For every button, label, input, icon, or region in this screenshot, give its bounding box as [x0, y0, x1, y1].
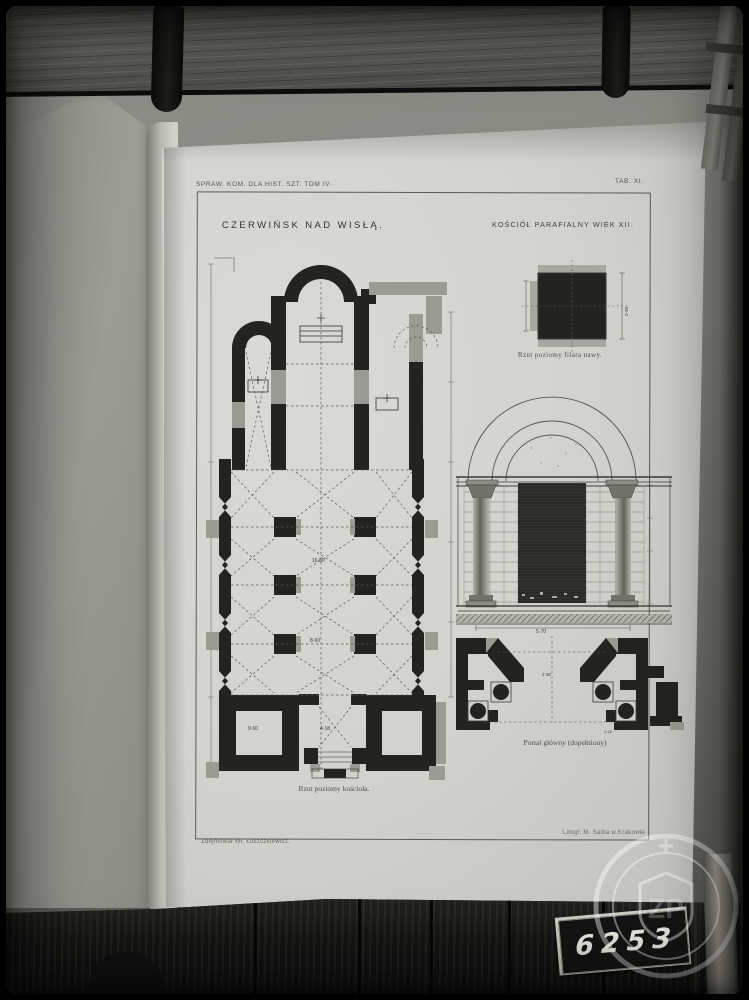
- plan-wall-notches: [219, 497, 424, 755]
- credit-draughtsman: Zdejmował Wł. Łuszczkiewicz.: [201, 839, 290, 845]
- inventory-plaque: 6253: [555, 906, 692, 975]
- board-grain: [6, 6, 743, 92]
- photograph-of-archival-plate: SPRAW. KOM. DLA HIST. SZT. TOM IV. TAB. …: [0, 0, 749, 1000]
- wooden-board: [6, 6, 743, 97]
- wooden-frame-corner: [656, 6, 743, 181]
- leather-strap-left: [151, 6, 185, 112]
- section-right-extension: [648, 666, 682, 726]
- plank-joint: [508, 899, 511, 994]
- tympanum-speckle: [530, 437, 577, 467]
- plank-joint: [254, 899, 257, 994]
- nave-pillar-section-drawing: 2·30: [522, 260, 630, 352]
- wooden-stick: [703, 854, 739, 994]
- svg-text:2·30: 2·30: [542, 672, 552, 677]
- section-gray-base: [670, 722, 684, 730]
- portal-column-left: [466, 480, 498, 607]
- plank-joint: [430, 899, 433, 994]
- plate-header-left: SPRAW. KOM. DLA HIST. SZT. TOM IV.: [196, 181, 332, 188]
- photo-area: SPRAW. KOM. DLA HIST. SZT. TOM IV. TAB. …: [6, 6, 743, 994]
- portal-elevation-drawing: [456, 388, 686, 626]
- plate-title-right: KOŚCIÓŁ PARAFIALNY WIEK XII.: [473, 220, 653, 229]
- portal-dim-ticks: [647, 485, 653, 604]
- svg-text:16·50: 16·50: [312, 558, 325, 564]
- right-shadow: [720, 106, 743, 906]
- doorway-opening: [518, 483, 586, 603]
- inventory-number: 6253: [569, 922, 679, 963]
- caption-pillar-plan: Rzut poziomy filara nawy.: [480, 351, 640, 359]
- credit-lithographer: Litogr. M. Salba w Krakowie: [563, 830, 645, 836]
- caption-portal: Portal główny (dopełniony): [480, 738, 650, 747]
- plate-header-right: TAB. XI.: [615, 178, 644, 185]
- pillar-dim-label: 2·30: [624, 306, 629, 316]
- svg-text:9·60: 9·60: [248, 726, 258, 732]
- plank-joint: [694, 899, 697, 994]
- book-cover: [6, 90, 160, 994]
- page-crease: [164, 136, 186, 916]
- svg-text:4·18: 4·18: [320, 726, 330, 732]
- plaque-face: 6253: [558, 909, 690, 974]
- plank-joint: [358, 899, 361, 994]
- church-floor-plan-drawing: 16·50 8·60 9·60 4·18: [204, 252, 456, 786]
- svg-text:5·70: 5·70: [536, 629, 546, 635]
- page-top-shadow: [156, 116, 716, 162]
- svg-text:8·60: 8·60: [310, 638, 320, 644]
- leather-strap-right: [601, 6, 631, 98]
- portal-column-right: [606, 480, 638, 607]
- plate-title-left: CZERWIŃSK NAD WISŁĄ.: [208, 220, 398, 231]
- portal-plan-section-drawing: 5·70 2·30 1·42: [454, 622, 690, 738]
- portal-archivolts: [468, 397, 636, 481]
- svg-text:1·42: 1·42: [604, 729, 613, 734]
